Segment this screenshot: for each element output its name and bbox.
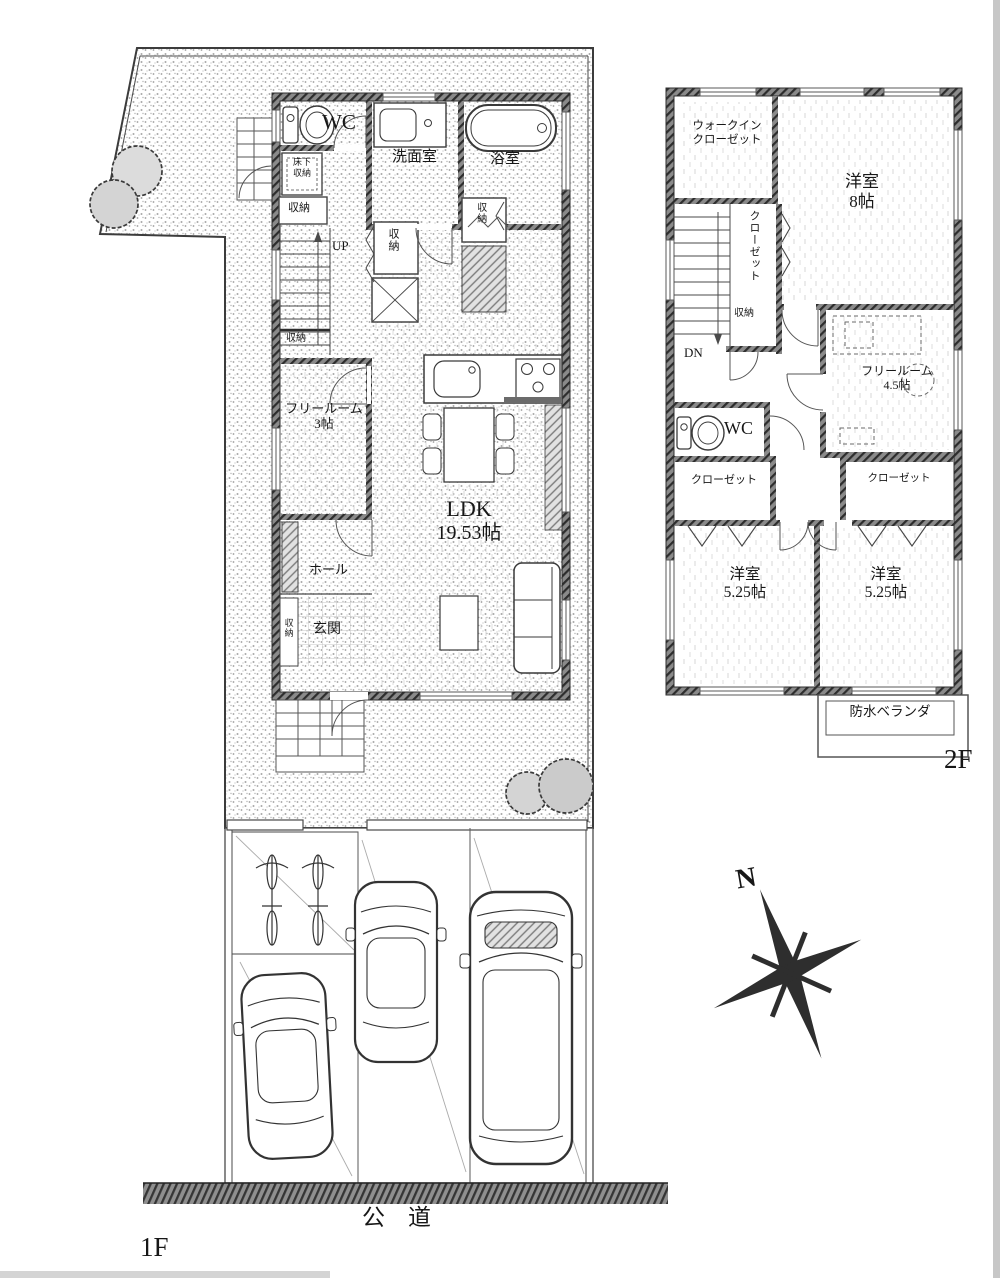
free-room-2f-label: フリールーム 4.5帖 — [843, 364, 951, 392]
porch-steps — [276, 700, 364, 772]
road-label: 公 道 — [362, 1204, 431, 1231]
floor-plan-page: WC 洗面室 浴室 床下 収納 収納 UP 収納 収納 収納 フリールーム 3帖… — [0, 0, 1000, 1278]
bedroom525-left-label: 洋室 5.25帖 — [688, 566, 802, 603]
storage-label-2f: 収納 — [734, 308, 754, 320]
ldk-label: LDK 19.53帖 — [412, 496, 526, 546]
storage-label-a: 収納 — [288, 202, 310, 215]
floor1-label: 1F — [140, 1232, 169, 1264]
bedroom8-label: 洋室 8帖 — [832, 172, 892, 212]
car-icon-1 — [231, 971, 342, 1160]
storage-label-understair: 収納 — [286, 333, 306, 345]
dn-label: DN — [684, 345, 703, 360]
walk-in-closet-label: ウォークイン クローゼット — [676, 120, 778, 147]
storage-label-kitchen: 収納 — [474, 202, 486, 224]
wc-2f-label: WC — [724, 418, 753, 439]
car-icon-2 — [346, 882, 446, 1062]
hall-label: ホール — [309, 562, 348, 577]
compass-icon — [681, 863, 895, 1088]
closet-label-vertical: クローゼット — [747, 210, 760, 282]
closet-label-right: クローゼット — [844, 473, 954, 485]
free-room-1f-label: フリールーム 3帖 — [278, 401, 370, 432]
entrance-label: 玄関 — [313, 622, 341, 639]
building-2f — [666, 88, 968, 757]
floor2-label: 2F — [944, 744, 973, 776]
closet-label-left: クローゼット — [674, 474, 774, 487]
bath-label: 浴室 — [490, 151, 520, 169]
bedroom525-right-label: 洋室 5.25帖 — [824, 566, 948, 603]
veranda-label: 防水ベランダ — [828, 704, 952, 720]
up-label: UP — [332, 238, 349, 253]
vanity-icon — [374, 103, 446, 147]
public-road — [143, 1183, 668, 1204]
toilet-icon-2f — [677, 416, 724, 450]
underfloor-storage-label: 床下 収納 — [283, 157, 321, 178]
scan-edge-right — [993, 0, 1000, 1278]
storage-label-genkan: 収納 — [283, 618, 294, 638]
wc-1f-label: WC — [322, 110, 356, 135]
scan-edge-bottom — [0, 1271, 330, 1278]
car-icon-3 — [460, 892, 582, 1164]
staircase-2f — [674, 204, 730, 352]
exterior-steps — [237, 118, 272, 200]
bathtub-icon — [466, 105, 556, 151]
washroom-label: 洗面室 — [392, 149, 437, 167]
storage-label-mid: 収納 — [386, 228, 399, 252]
